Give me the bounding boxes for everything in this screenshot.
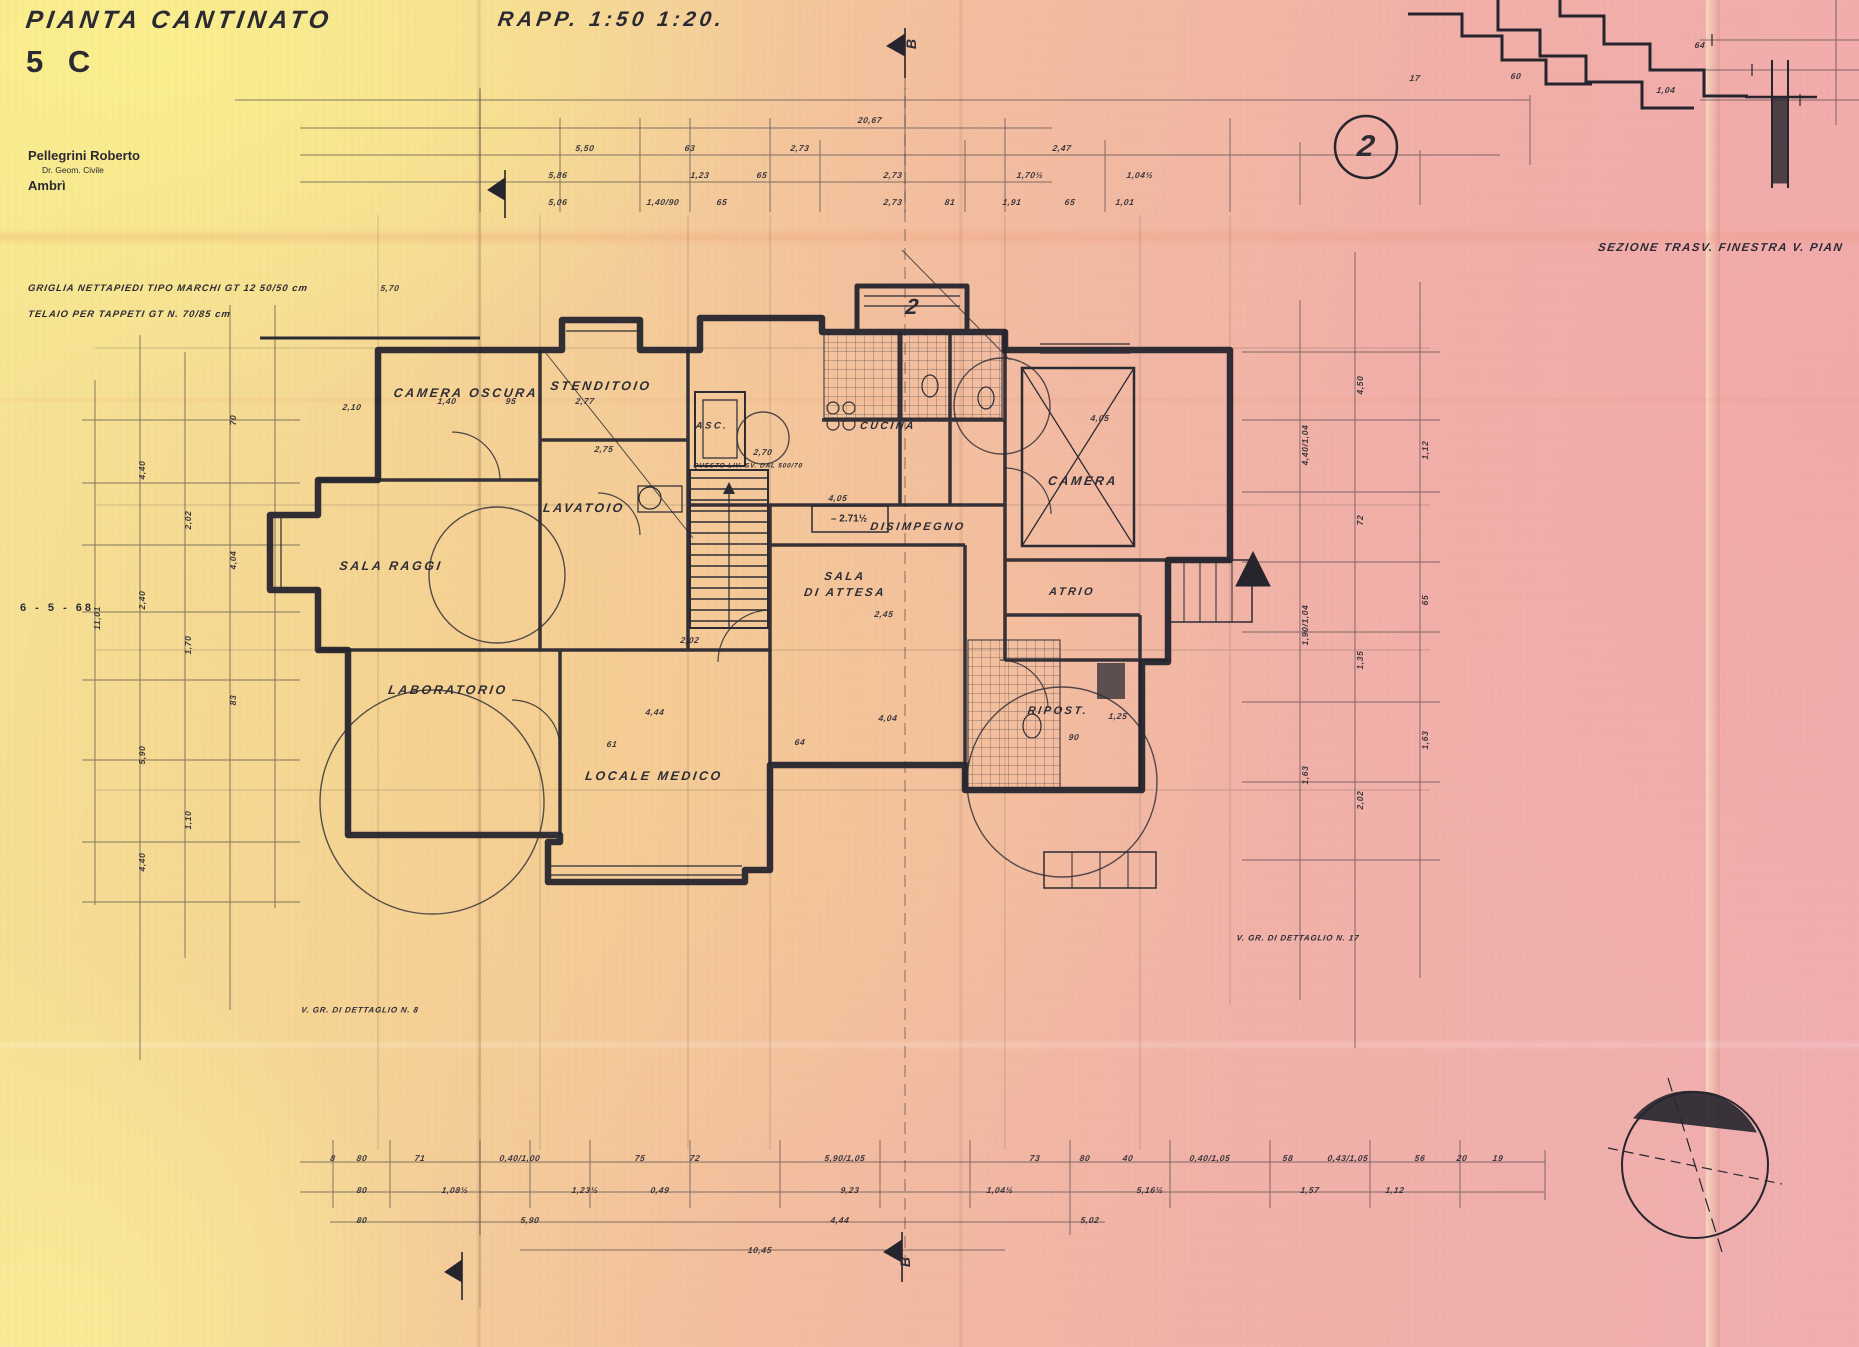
author-name: Pellegrini Roberto bbox=[28, 148, 140, 163]
section-lines bbox=[480, 58, 905, 1308]
blueprint-scan: PIANTA CANTINATO 5 C RAPP. 1:50 1:20. Pe… bbox=[0, 0, 1859, 1347]
dimension-lines bbox=[82, 88, 1545, 1250]
interior-partitions bbox=[318, 330, 1230, 835]
author-block: Pellegrini Roberto Dr. Geom. Civile Ambr… bbox=[28, 148, 140, 193]
window-section-detail bbox=[1408, 0, 1859, 188]
level-label: – 2.71½ bbox=[831, 514, 867, 525]
author-qualification: Dr. Geom. Civile bbox=[28, 163, 140, 178]
compass-symbol bbox=[1608, 1078, 1782, 1252]
author-location: Ambrì bbox=[28, 178, 140, 193]
date-note: 6 - 5 - 68 bbox=[20, 602, 94, 614]
section-marker-flags bbox=[445, 28, 1397, 1300]
plan-linework bbox=[0, 0, 1859, 1347]
drawing-title: PIANTA CANTINATO bbox=[24, 6, 334, 35]
sheet-number: 5 C bbox=[26, 44, 98, 80]
scale-note: RAPP. 1:50 1:20. bbox=[496, 8, 726, 32]
materials-note: GRIGLIA NETTAPIEDI TIPO MARCHI GT 12 50/… bbox=[27, 283, 308, 294]
materials-note: TELAIO PER TAPPETI GT N. 70/85 cm bbox=[27, 309, 231, 320]
section-caption: SEZIONE TRASV. FINESTRA V. PIAN bbox=[1597, 242, 1844, 254]
stairs bbox=[690, 470, 768, 628]
